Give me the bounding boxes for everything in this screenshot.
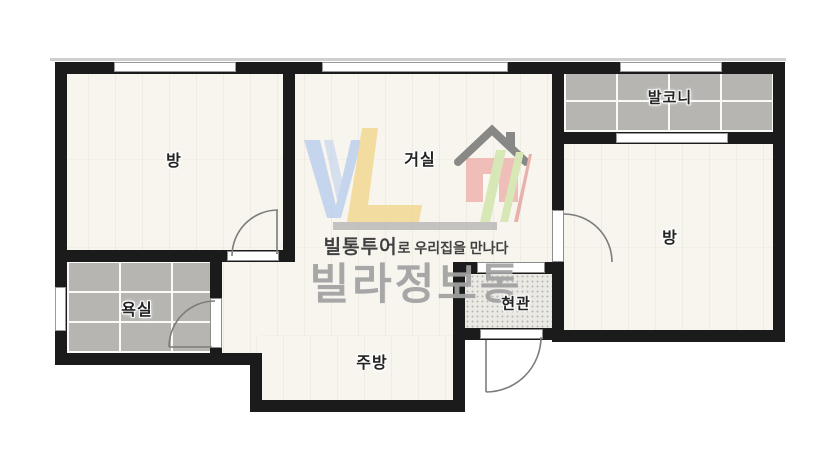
door-arc-room-right [564,214,612,262]
room-label-living: 거실 [404,146,435,170]
watermark-brand: 빌라정보통 [296,250,536,312]
room-label-entrance: 현관 [501,293,531,314]
room-label-kitchen: 주방 [356,349,387,373]
floor-plan: 빌통투어로 우리집을 만나다 빌라정보통 방 거실 발코니 방 욕실 주방 현관 [0,0,840,472]
door-arc-bathroom [169,301,215,347]
room-label-balcony: 발코니 [648,87,692,108]
viltour-logo-icon [300,122,532,234]
room-label-left: 방 [166,147,182,171]
door-arc-front [486,337,541,392]
room-label-right: 방 [662,224,678,248]
room-label-bathroom: 욕실 [121,296,152,320]
door-arc-room-left [232,210,278,256]
